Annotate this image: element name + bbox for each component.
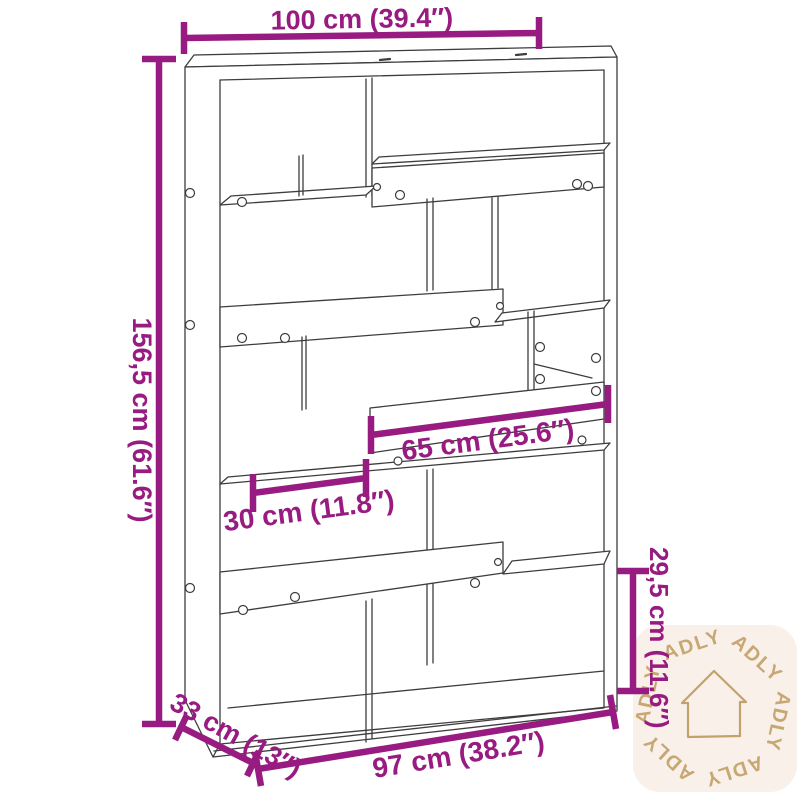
right-inner-height-label: 29,5 cm (11.6″) — [644, 547, 674, 729]
top-width-label: 100 cm (39.4″) — [270, 2, 453, 35]
height-label: 156,5 cm (61.6″) — [127, 317, 157, 522]
top-width-dimension: 100 cm (39.4″) — [184, 2, 539, 54]
diagram-canvas: ADLY ADLY ADLY ADLY ADLY ADLY — [0, 0, 800, 800]
dimension-diagram: ADLY ADLY ADLY ADLY ADLY ADLY — [0, 0, 800, 800]
bookshelf-drawing — [185, 46, 617, 757]
right-inner-height-dimension: 29,5 cm (11.6″) — [617, 547, 674, 729]
height-dimension: 156,5 cm (61.6″) — [127, 59, 176, 724]
